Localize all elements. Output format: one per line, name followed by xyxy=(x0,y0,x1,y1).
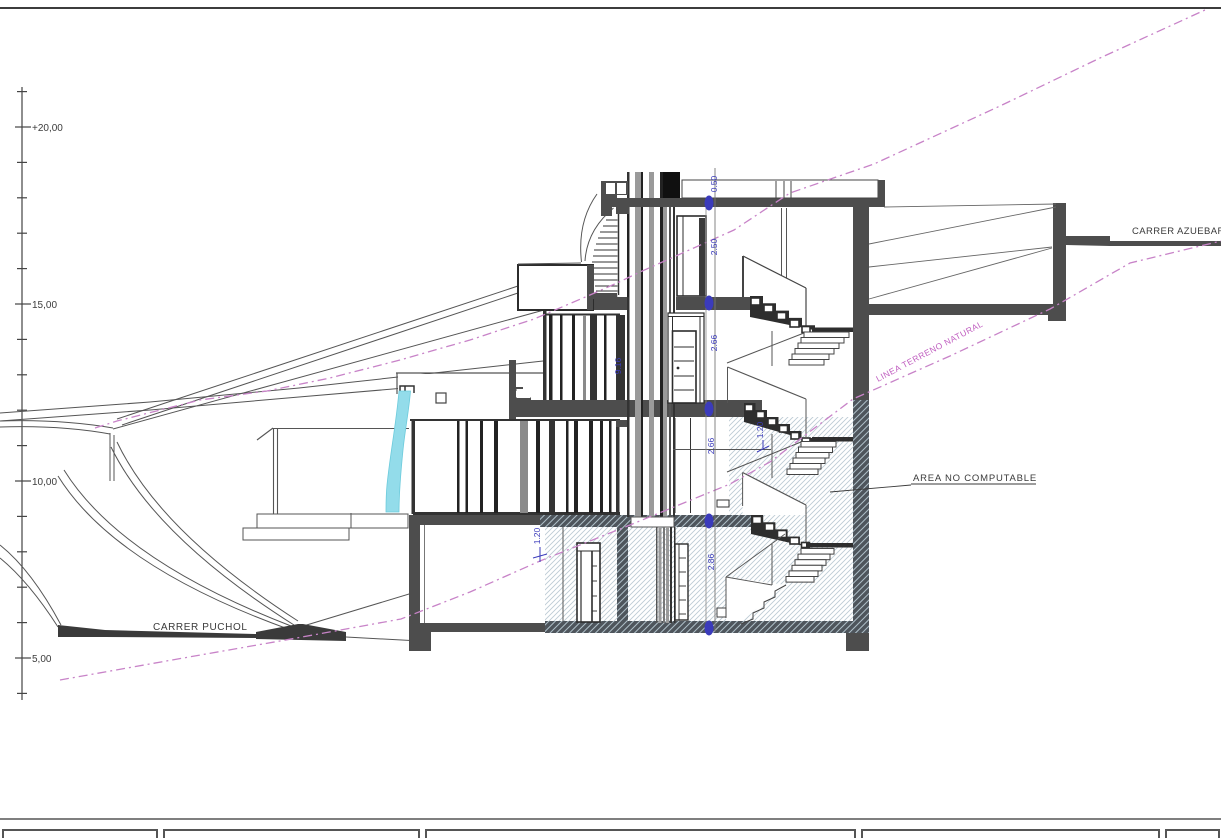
svg-text:10,00: 10,00 xyxy=(32,477,57,488)
svg-text:CARRER AZUEBAR: CARRER AZUEBAR xyxy=(1132,226,1221,237)
svg-text:2.50: 2.50 xyxy=(709,238,719,255)
svg-text:2.66: 2.66 xyxy=(709,334,719,351)
svg-text:AREA NO COMPUTABLE: AREA NO COMPUTABLE xyxy=(913,473,1037,484)
svg-text:9.16: 9.16 xyxy=(613,357,623,374)
svg-text:CARRER PUCHOL: CARRER PUCHOL xyxy=(153,622,247,633)
svg-text:+20,00: +20,00 xyxy=(32,123,63,134)
svg-text:1.20: 1.20 xyxy=(755,421,765,438)
svg-text:2.86: 2.86 xyxy=(706,553,716,570)
svg-text:15,00: 15,00 xyxy=(32,300,57,311)
svg-text:2.66: 2.66 xyxy=(706,437,716,454)
svg-text:0.50: 0.50 xyxy=(709,175,719,192)
svg-text:5,00: 5,00 xyxy=(32,654,52,665)
svg-text:1.20: 1.20 xyxy=(532,527,542,544)
